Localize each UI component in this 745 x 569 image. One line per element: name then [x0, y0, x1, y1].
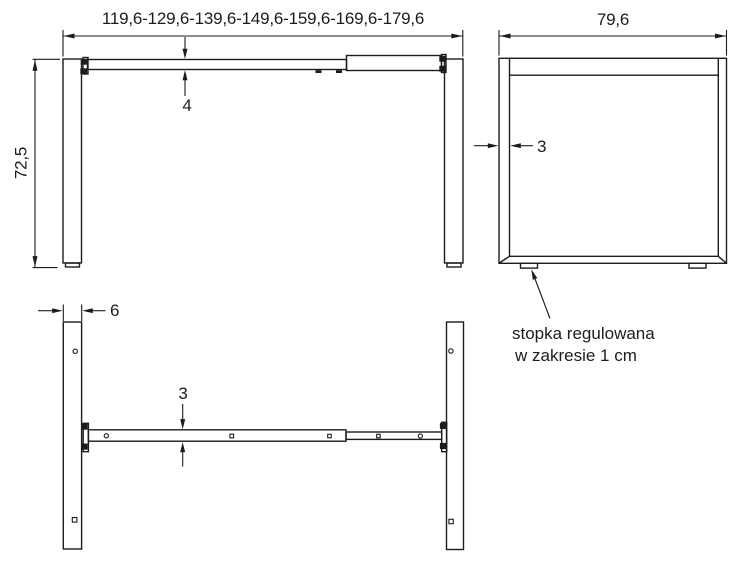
beam-hole-round: [104, 434, 108, 438]
arrowhead-up: [180, 442, 185, 452]
dimension-depth-79-6: [499, 30, 727, 56]
side-right-chamfer: [718, 256, 726, 263]
arrowhead-right: [52, 308, 63, 313]
top-right-leg-panel: [447, 322, 464, 550]
beam-height-dimension-label: 4: [182, 96, 191, 115]
front-right-connector-tab: [440, 67, 446, 72]
arrowhead-right: [451, 34, 462, 39]
leg-width-dimension-label: 6: [110, 301, 119, 320]
side-left-foot: [521, 263, 538, 268]
depth-dimension-label: 79,6: [597, 10, 629, 29]
arrowhead-right: [715, 34, 726, 39]
adjustable-foot-note-line1: stopka regulowana: [512, 324, 655, 344]
front-left-connector-tab: [82, 60, 88, 65]
arrowhead-left: [64, 34, 75, 39]
top-view: [63, 322, 463, 550]
dimension-width-range: [63, 30, 463, 57]
arrowhead-left: [500, 34, 511, 39]
panel-hole-round: [73, 349, 77, 353]
front-beam-outer-tube: [347, 56, 442, 71]
beam-hole-square: [328, 434, 332, 438]
dimension-height-72-5: [33, 59, 61, 267]
front-left-leg: [63, 59, 82, 263]
top-left-connector-tab: [82, 444, 87, 449]
beam-hole-square: [230, 434, 234, 438]
arrowhead-left: [510, 143, 521, 148]
dimension-top-beam-3: [180, 404, 185, 467]
top-beam-outer-tube: [88, 430, 346, 441]
top-beam-inner-tube: [346, 432, 442, 439]
adjustable-foot-note-line2: w zakresie 1 cm: [515, 346, 637, 366]
leader-line: [535, 278, 551, 319]
top-left-connector-tab: [82, 424, 87, 429]
top-left-leg-panel: [63, 322, 81, 549]
height-dimension-label: 72,5: [12, 147, 31, 179]
side-profile-dimension-label: 3: [537, 137, 546, 156]
side-right-foot: [689, 263, 706, 268]
front-left-foot: [66, 263, 80, 267]
panel-hole-square: [449, 519, 453, 523]
front-right-leg: [445, 59, 464, 263]
front-view: [63, 55, 463, 268]
arrowhead-down: [33, 256, 38, 267]
table-frame-technical-drawing: 119,6-129,6-139,6-149,6-159,6-169,6-179,…: [0, 0, 745, 569]
front-beam-inner-tube: [88, 60, 347, 70]
width-range-dimension-label: 119,6-129,6-139,6-149,6-159,6-169,6-179,…: [102, 9, 424, 28]
front-right-connector-tab: [440, 57, 446, 62]
front-right-foot: [447, 263, 461, 267]
top-right-connector-tab: [441, 444, 446, 449]
foot-leader: [531, 269, 550, 318]
side-frame-outline: [499, 58, 727, 263]
arrowhead-to-foot: [531, 269, 537, 280]
arrowhead-down: [180, 419, 185, 429]
top-right-connector-tab: [441, 424, 446, 429]
front-left-connector-tab: [81, 69, 87, 74]
arrowhead-right: [488, 143, 499, 148]
front-beam-clamp-mark: [336, 70, 342, 73]
arrowhead-down: [183, 49, 188, 59]
side-left-chamfer: [499, 256, 509, 263]
beam-hole-round: [418, 434, 422, 438]
dimension-side-profile-3: [474, 143, 533, 148]
panel-hole-square: [72, 518, 77, 523]
top-beam-dimension-label: 3: [178, 384, 187, 403]
arrowhead-up: [183, 70, 188, 80]
side-view: [499, 58, 727, 268]
dimension-leg-width-6: [38, 305, 106, 322]
arrowhead-up: [33, 60, 38, 71]
dimension-beam-height-4: [183, 37, 188, 96]
arrowhead-left: [82, 308, 93, 313]
drawing-linework: [0, 0, 745, 569]
front-beam-clamp-mark: [316, 70, 322, 73]
panel-hole-round: [449, 349, 453, 353]
beam-hole-square: [377, 434, 381, 438]
